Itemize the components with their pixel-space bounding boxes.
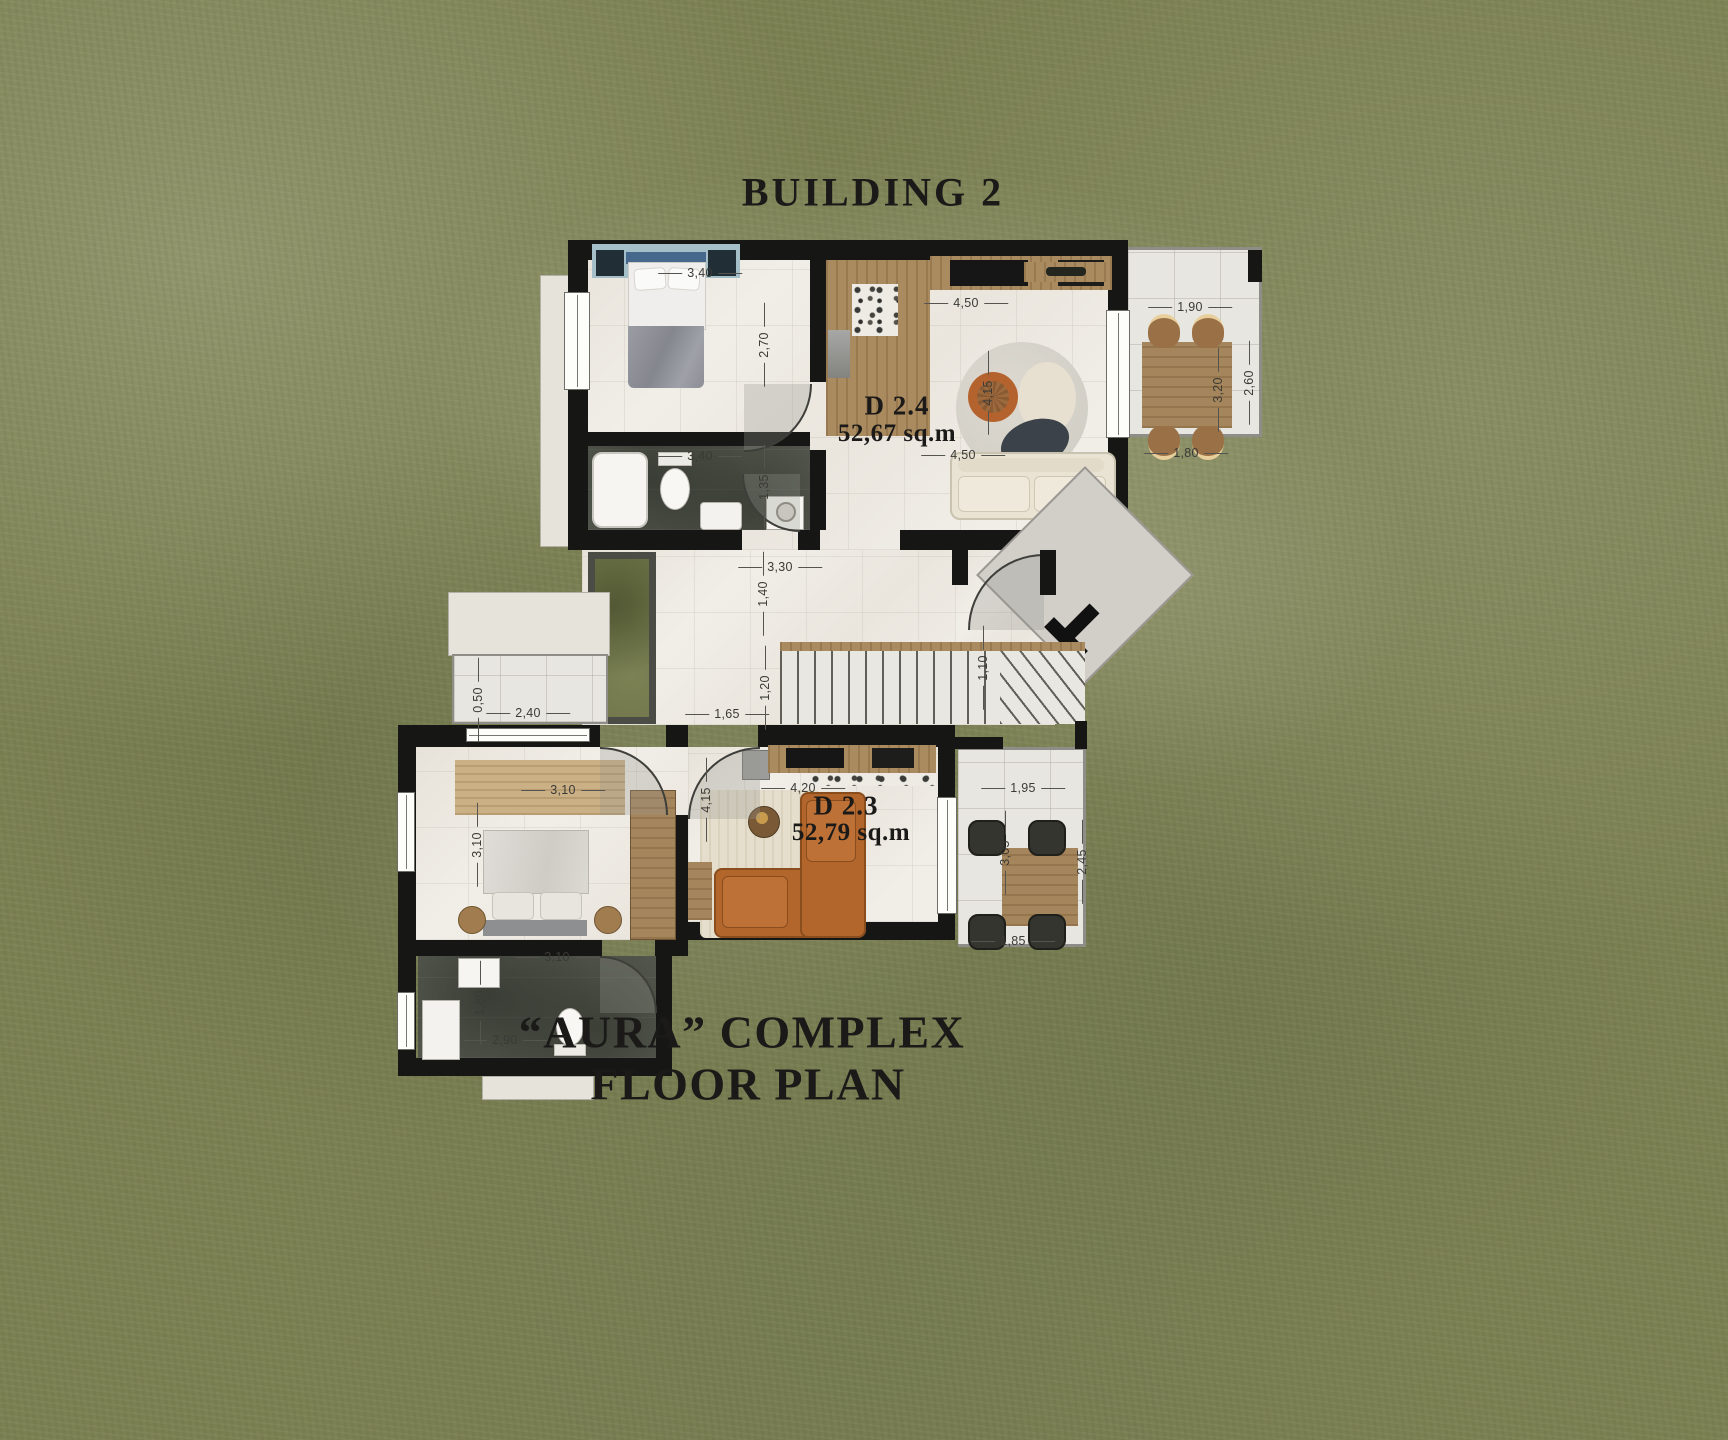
- dimension-label: 3,10: [470, 803, 484, 887]
- dimensions-layer: 3,402,704,504,153,401,354,501,903,202,60…: [0, 0, 1728, 1440]
- dimension-label: 4,15: [981, 351, 995, 435]
- dimension-label: 3,30: [738, 560, 822, 574]
- dimension-label: 2,90: [463, 1033, 547, 1047]
- dimension-label: 3,40: [658, 449, 742, 463]
- dimension-label: 3,05: [998, 811, 1012, 895]
- dimension-label: 1,40: [756, 552, 770, 636]
- dimension-label: 1,85: [971, 934, 1055, 948]
- dimension-label: 4,15: [699, 758, 713, 842]
- dimension-label: 2,70: [757, 303, 771, 387]
- dimension-label: 1,65: [685, 707, 769, 721]
- dimension-label: 1,95: [981, 781, 1065, 795]
- dimension-label: 4,50: [921, 448, 1005, 462]
- dimension-label: 1,90: [1148, 300, 1232, 314]
- dimension-label: 0,50: [471, 658, 485, 742]
- dimension-label: 3,10: [515, 950, 599, 964]
- dimension-label: 2,60: [1242, 341, 1256, 425]
- dimension-label: 1,10: [976, 626, 990, 710]
- dimension-label: 2,40: [486, 706, 570, 720]
- dimension-label: 4,50: [924, 296, 1008, 310]
- dimension-label: 3,20: [1211, 348, 1225, 432]
- floor-plan-scene: D 2.4 52,67 sq.m D 2.3 52,79 sq.m BUILDI…: [0, 0, 1728, 1440]
- dimension-label: 2,45: [1075, 820, 1089, 904]
- dimension-label: 3,10: [521, 783, 605, 797]
- dimension-label: 3,40: [658, 266, 742, 280]
- dimension-label: 1,35: [757, 445, 771, 529]
- dimension-label: 1,80: [1144, 446, 1228, 460]
- dimension-label: 4,20: [761, 781, 845, 795]
